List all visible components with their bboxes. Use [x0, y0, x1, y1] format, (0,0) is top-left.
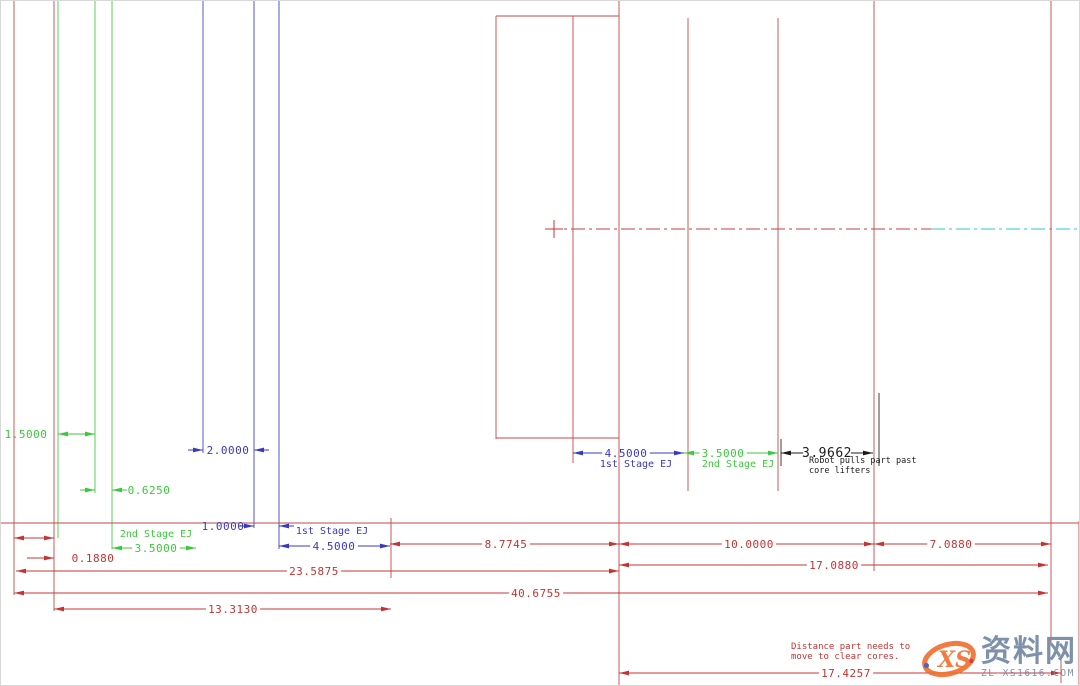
svg-text:17.4257: 17.4257 [821, 667, 871, 680]
dimension-4.5000: 4.50001st Stage EJ [573, 447, 684, 470]
svg-text:23.5875: 23.5875 [289, 565, 339, 578]
cad-drawing-canvas: 1.50000.62502.00001.00003.50002nd Stage … [0, 0, 1080, 686]
dimension-0.1880: 0.1880 [27, 552, 114, 565]
dimension-3.5000: 3.50002nd Stage EJ [684, 447, 778, 470]
dimension-17.0880: 17.0880 [619, 559, 1048, 572]
svg-text:0.1880: 0.1880 [72, 552, 115, 565]
svg-text:Robot pulls part past: Robot pulls part past [809, 456, 916, 466]
dimension-1.0000: 1.0000 [202, 520, 294, 533]
watermark-site-name: 资料网 [981, 637, 1077, 667]
dimension-dim-small-left [14, 536, 54, 541]
svg-text:1st Stage EJ: 1st Stage EJ [600, 459, 672, 470]
watermark-site-url: ZL-XS1616.COM [981, 669, 1077, 679]
svg-text:0.6250: 0.6250 [128, 484, 171, 497]
dimension-8.7745: 8.7745 [390, 538, 619, 551]
dimension-1.5000: 1.5000 [5, 428, 95, 441]
svg-text:8.7745: 8.7745 [485, 538, 528, 551]
svg-text:move to clear cores.: move to clear cores. [791, 652, 899, 662]
svg-text:4.5000: 4.5000 [313, 540, 356, 553]
svg-text:13.3130: 13.3130 [208, 603, 258, 616]
svg-text:10.0000: 10.0000 [724, 538, 774, 551]
svg-text:7.0880: 7.0880 [930, 538, 973, 551]
dimension-2.0000: 2.0000 [188, 444, 269, 457]
watermark-xs-logo: XS [921, 635, 977, 681]
dimension-13.3130: 13.3130 [54, 603, 391, 616]
dimension-3.9662: 3.9662Robot pulls part pastcore lifters [781, 446, 916, 476]
svg-text:core lifters: core lifters [809, 466, 870, 476]
svg-text:2nd Stage EJ: 2nd Stage EJ [702, 459, 774, 470]
dimension-3.5000: 3.50002nd Stage EJ [112, 529, 196, 555]
mold-ejection-sequence-drawing: 1.50000.62502.00001.00003.50002nd Stage … [1, 1, 1080, 686]
dimension-10.0000: 10.0000 [619, 538, 874, 551]
watermark-xs-text: XS [936, 647, 971, 673]
svg-text:17.0880: 17.0880 [809, 559, 859, 572]
svg-text:3.5000: 3.5000 [135, 542, 178, 555]
svg-text:1.5000: 1.5000 [5, 428, 48, 441]
svg-text:1.0000: 1.0000 [202, 520, 245, 533]
note-clear-cores: Distance part needs tomove to clear core… [791, 642, 910, 662]
svg-text:2.0000: 2.0000 [207, 444, 250, 457]
centerlines [545, 220, 1080, 238]
svg-text:40.6755: 40.6755 [511, 587, 561, 600]
watermark: XS 资料网 ZL-XS1616.COM [921, 635, 1077, 681]
dimension-40.6755: 40.6755 [14, 587, 1048, 600]
dimension-0.6250: 0.6250 [80, 484, 170, 497]
dimension-7.0880: 7.0880 [874, 538, 1051, 551]
dimension-4.5000: 4.50001st Stage EJ [279, 526, 390, 553]
svg-text:1st Stage EJ: 1st Stage EJ [296, 526, 368, 537]
svg-text:2nd Stage EJ: 2nd Stage EJ [120, 529, 192, 540]
construction-lines [1, 1, 1079, 686]
dimension-23.5875: 23.5875 [16, 565, 619, 578]
svg-text:Distance part needs to: Distance part needs to [791, 642, 910, 652]
